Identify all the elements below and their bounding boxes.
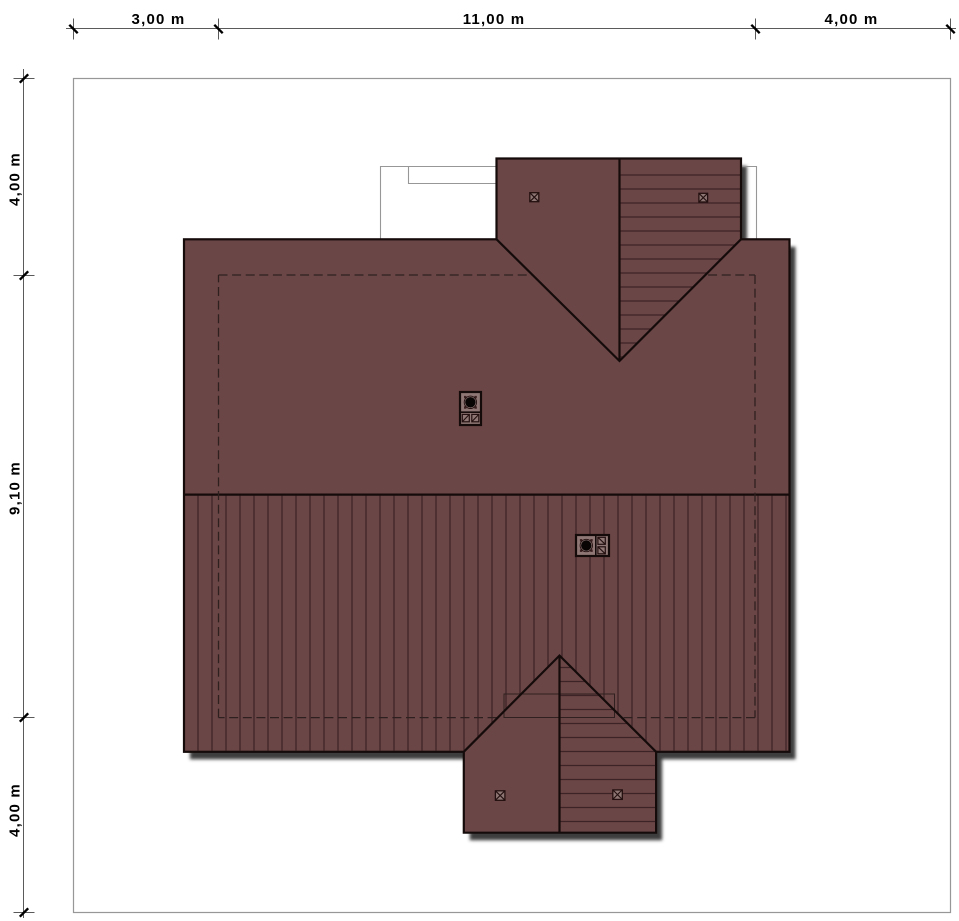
svg-text:4,00 m: 4,00 m — [7, 152, 24, 206]
svg-text:9,10 m: 9,10 m — [7, 461, 24, 515]
svg-text:3,00 m: 3,00 m — [132, 11, 186, 28]
svg-text:4,00 m: 4,00 m — [7, 783, 24, 837]
svg-text:11,00 m: 11,00 m — [463, 11, 526, 28]
svg-text:4,00 m: 4,00 m — [825, 11, 879, 28]
